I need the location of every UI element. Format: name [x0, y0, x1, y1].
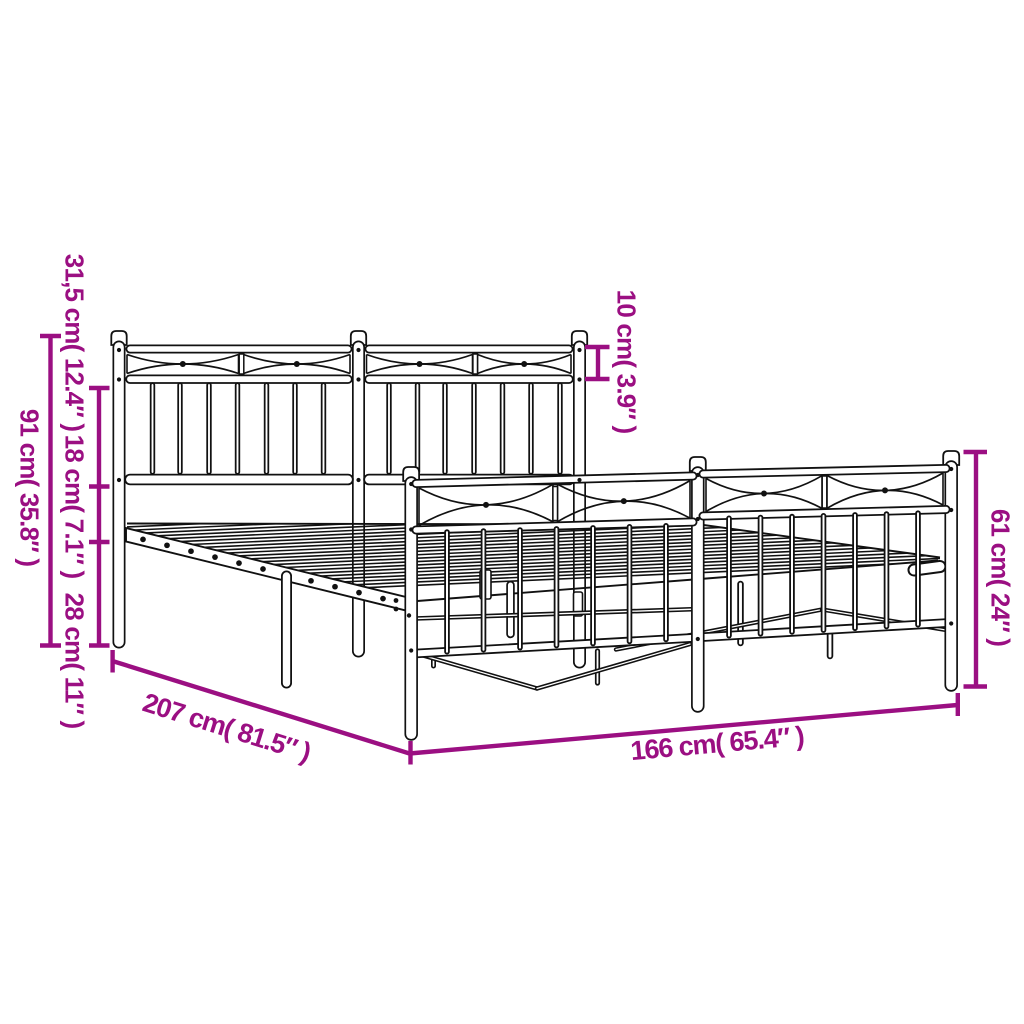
svg-text:10 cm( 3.9″ ): 10 cm( 3.9″ ): [612, 290, 642, 434]
svg-text:28 cm( 11″ ): 28 cm( 11″ ): [60, 593, 90, 729]
svg-text:91 cm( 35.8″ ): 91 cm( 35.8″ ): [15, 409, 45, 566]
svg-text:31,5 cm( 12.4″ ): 31,5 cm( 12.4″ ): [60, 254, 90, 432]
svg-text:18 cm( 7.1″ ): 18 cm( 7.1″ ): [60, 435, 90, 579]
svg-text:61 cm( 24″ ): 61 cm( 24″ ): [986, 509, 1016, 646]
